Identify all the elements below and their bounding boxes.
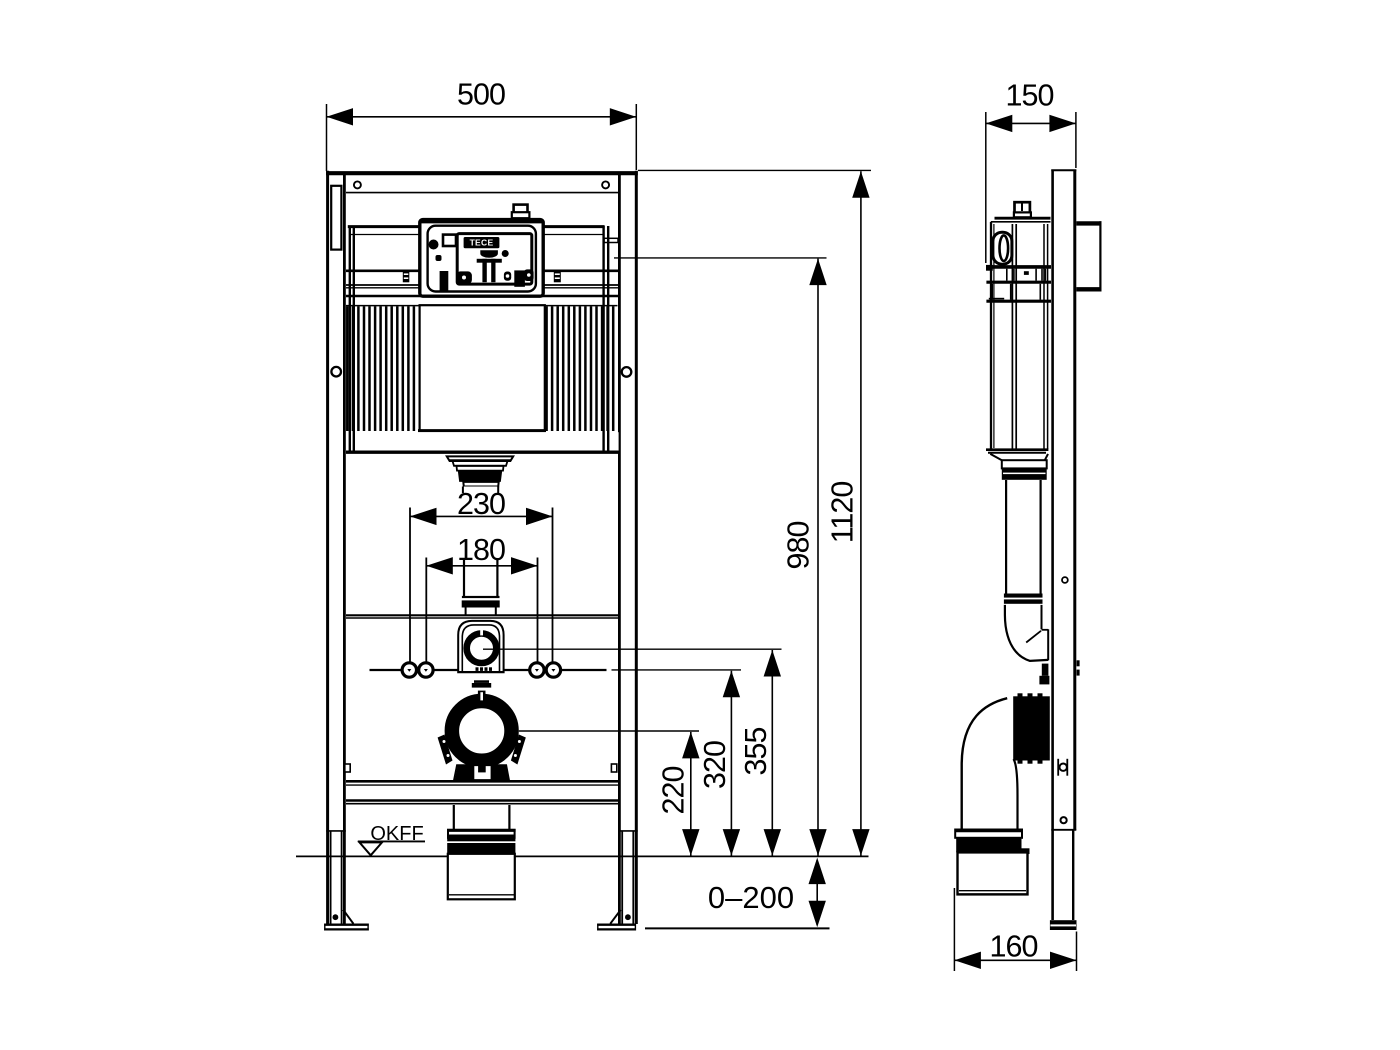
svg-text:0–200: 0–200 xyxy=(708,880,794,915)
svg-text:160: 160 xyxy=(990,930,1038,964)
svg-text:1120: 1120 xyxy=(826,482,860,544)
svg-text:980: 980 xyxy=(782,522,816,570)
svg-text:355: 355 xyxy=(739,728,773,776)
svg-text:TECE: TECE xyxy=(470,238,494,248)
svg-text:230: 230 xyxy=(457,487,505,521)
svg-text:220: 220 xyxy=(656,767,690,815)
svg-text:150: 150 xyxy=(1006,79,1054,113)
svg-text:320: 320 xyxy=(698,741,732,789)
svg-text:500: 500 xyxy=(457,78,505,112)
svg-text:180: 180 xyxy=(457,533,505,567)
